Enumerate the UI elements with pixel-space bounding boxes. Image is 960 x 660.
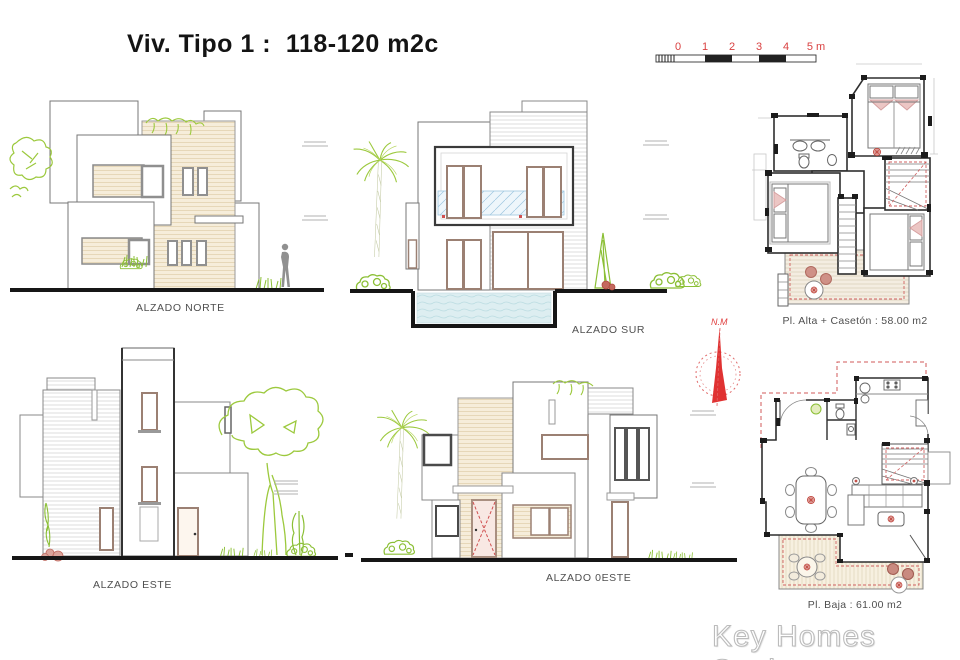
tower-lower-panel xyxy=(140,507,158,541)
scale-tick-3: 3 xyxy=(756,41,762,53)
lower-windows xyxy=(447,232,563,289)
house-volumes xyxy=(20,348,248,556)
level-mark-icon xyxy=(302,216,328,220)
red-dot xyxy=(855,480,858,483)
tower-windows-lower xyxy=(168,241,206,265)
side-window xyxy=(100,508,113,550)
scale-tick-0: 0 xyxy=(675,41,681,53)
bush-icon xyxy=(384,540,414,554)
alzado-este-label: ALZADO ESTE xyxy=(93,579,172,591)
ground-line xyxy=(12,556,338,560)
lower-window xyxy=(129,240,149,264)
side-window xyxy=(409,240,417,268)
level-mark-icon xyxy=(643,215,669,219)
red-flower-bush xyxy=(602,281,615,290)
pool-water xyxy=(417,293,551,323)
planta-baja-label: Pl. Baja : 61.00 m2 xyxy=(752,599,958,611)
scale-tick-5: 5 m xyxy=(807,41,825,53)
red-plant-icon xyxy=(807,496,815,504)
door-handle xyxy=(475,529,477,531)
scale-tick-2: 2 xyxy=(729,41,735,53)
red-dot xyxy=(913,480,916,483)
entry-door xyxy=(178,508,198,556)
planta-alta-drawing xyxy=(752,58,958,310)
cypress-tree-icon xyxy=(595,233,611,288)
red-plant-icon xyxy=(888,516,895,523)
upper-window-band xyxy=(93,165,144,197)
scale-tick-1: 1 xyxy=(702,41,708,53)
palm-tree-icon xyxy=(377,410,429,519)
alzado-sur-label: ALZADO SUR xyxy=(572,324,645,336)
plan-sheet: Viv. Tipo 1 : 118-120 m2c 0 1 2 3 4 5 m xyxy=(0,0,960,660)
planta-alta-label: Pl. Alta + Casetón : 58.00 m2 xyxy=(752,315,958,327)
compass-label: N.M xyxy=(711,317,728,327)
side-door xyxy=(612,502,628,557)
red-plant-icon xyxy=(896,582,903,589)
corner-window xyxy=(424,435,451,465)
bush-icon xyxy=(650,273,684,288)
level-mark-icon xyxy=(302,142,328,146)
lower-left-window xyxy=(436,506,458,536)
bed-bottom-right xyxy=(870,214,924,270)
palm-tree-icon xyxy=(354,142,409,258)
bush-icon xyxy=(356,275,390,290)
watermark: Key Homes Spain xyxy=(712,620,960,660)
lower-window-panes xyxy=(531,508,568,535)
alzado-norte-label: ALZADO NORTE xyxy=(136,302,225,314)
alzado-este-drawing xyxy=(12,335,340,575)
alzado-norte-drawing xyxy=(8,93,338,305)
center-window xyxy=(542,435,588,459)
right-slot-windows xyxy=(615,428,649,480)
upper-window xyxy=(142,166,163,197)
person-figure xyxy=(281,244,290,287)
ground-line xyxy=(10,288,324,292)
alzado-sur-drawing xyxy=(335,90,740,338)
door-handle xyxy=(194,533,197,536)
shrub-tall xyxy=(292,511,304,556)
planta-baja-drawing xyxy=(752,352,958,602)
red-plant-icon xyxy=(804,564,811,571)
sheet-title: Viv. Tipo 1 : 118-120 m2c xyxy=(127,30,439,59)
bed-top-right xyxy=(868,84,920,148)
shrub-sketch xyxy=(10,137,52,197)
red-plant-icon xyxy=(811,287,818,294)
north-compass: N.M xyxy=(687,310,745,422)
green-plant-icon xyxy=(811,404,821,414)
alzado-oeste-label: ALZADO 0ESTE xyxy=(546,572,631,584)
terrace-steps xyxy=(778,274,788,306)
bed-master xyxy=(770,182,830,244)
scale-tick-4: 4 xyxy=(783,41,789,53)
grass-icon xyxy=(256,277,281,289)
level-mark-icon xyxy=(690,483,716,487)
level-mark-icon xyxy=(643,141,669,145)
alzado-oeste-drawing xyxy=(345,362,743,574)
red-plant-icon xyxy=(873,148,881,156)
